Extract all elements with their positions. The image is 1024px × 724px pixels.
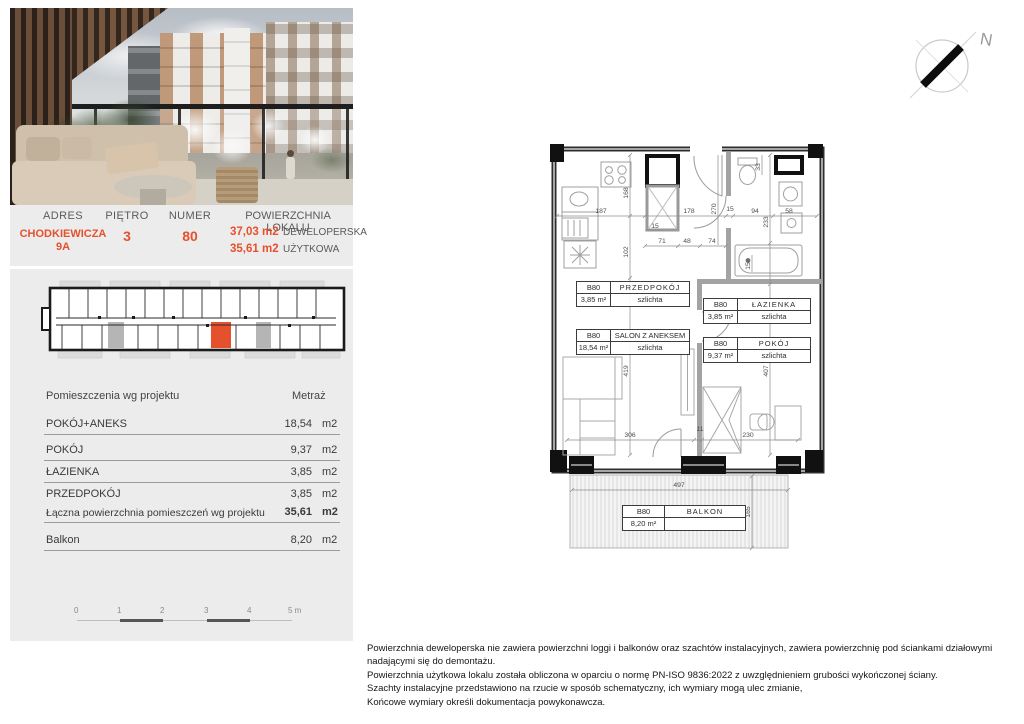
pedestrian — [286, 157, 295, 179]
room-tag-id: B80 — [577, 330, 611, 342]
footnote-line: Powierzchnia deweloperska nie zawiera po… — [367, 642, 1022, 655]
room-row-name: POKÓJ+ANEKS — [46, 418, 127, 430]
dim-label: 497 — [673, 482, 685, 489]
address-label: ADRES — [22, 210, 104, 222]
room-tag-name: POKÓJ — [738, 338, 810, 350]
room-tag-lazienka: B80 ŁAZIENKA 3,85 m² szlichta — [703, 298, 811, 324]
room-row-name: POKÓJ — [46, 444, 83, 456]
balcony-row-name: Balkon — [46, 534, 80, 546]
total-row-unit: m2 — [322, 506, 338, 518]
footnote-line: Powierzchnia użytkowa lokalu została obl… — [367, 669, 1022, 682]
scale-tick: 5 m — [288, 606, 301, 615]
room-tag-id: B80 — [704, 338, 738, 350]
room-tag-finish: szlichta — [738, 311, 810, 323]
dim-label: 168 — [623, 187, 630, 199]
room-tag-finish: szlichta — [611, 294, 689, 306]
room-tag-area: 9,37 m² — [704, 350, 738, 362]
scale-segment — [250, 620, 292, 621]
room-tag-balkon: B80 BALKON 8,20 m² — [622, 505, 746, 531]
room-tag-salon: B80 SALON Z ANEKSEM 18,54 m² szlichta — [576, 329, 690, 355]
unit-highlight — [211, 322, 231, 348]
floor-value: 3 — [97, 230, 157, 243]
dim-label: 48 — [683, 238, 691, 245]
room-tag-finish — [665, 518, 745, 530]
compass-icon: N — [900, 22, 1000, 104]
dim-label: 187 — [595, 208, 607, 215]
number-value: 80 — [160, 230, 220, 243]
entry-opening — [690, 143, 722, 154]
apartment-card: ADRES PIĘTRO NUMER POWIERZCHNIA LOKALU C… — [0, 0, 1024, 724]
room-tag-finish: szlichta — [611, 342, 689, 354]
dim-label: 165 — [745, 506, 752, 518]
floor-overview-plan — [40, 276, 346, 372]
room-tag-id: B80 — [704, 299, 738, 311]
room-tag-name: PRZEDPOKÓJ — [611, 282, 689, 294]
balcony-render-photo — [10, 8, 353, 205]
number-label: NUMER — [160, 210, 220, 222]
dim-label: 71 — [658, 238, 666, 245]
footnote-line: nadającymi się do demontażu. — [367, 655, 1022, 668]
dim-label: 15 — [726, 206, 734, 213]
dim-label: 233 — [763, 216, 770, 228]
dim-label: 11 — [696, 426, 703, 433]
dim-label: 178 — [683, 208, 695, 215]
table-header-metric: Metraż — [292, 390, 326, 402]
balcony-row-unit: m2 — [322, 534, 337, 546]
dim-label: 33 — [755, 163, 762, 171]
floor-label: PIĘTRO — [97, 210, 157, 222]
room-tag-name: BALKON — [665, 506, 745, 518]
basket — [216, 167, 258, 203]
room-row-name: PRZEDPOKÓJ — [46, 488, 121, 500]
room-row-value: 3,85 — [252, 488, 312, 500]
room-tag-area: 3,85 m² — [577, 294, 611, 306]
room-tag-finish: szlichta — [738, 350, 810, 362]
dim-label: 102 — [623, 246, 630, 258]
scale-tick: 3 — [204, 606, 208, 615]
footnotes: Powierzchnia deweloperska nie zawiera po… — [367, 642, 1022, 709]
dim-label: 306 — [624, 432, 636, 439]
scale-segment — [120, 619, 163, 622]
room-row-unit: m2 — [322, 466, 337, 478]
overview-entrance — [42, 308, 50, 330]
shaft-box — [776, 157, 802, 173]
dim-label: 94 — [751, 208, 759, 215]
balcony-row-value: 8,20 — [252, 534, 312, 546]
shaft-box — [647, 156, 678, 186]
footnote-line: Końcowe wymiary określi dokumentacja pow… — [367, 696, 1022, 709]
footnote-line: Szachty instalacyjne przedstawiono na rz… — [367, 682, 1022, 695]
scale-tick: 1 — [117, 606, 121, 615]
row-divider — [44, 460, 340, 461]
room-row-unit: m2 — [322, 418, 337, 430]
scale-tick: 2 — [160, 606, 164, 615]
room-row-value: 9,37 — [252, 444, 312, 456]
room-tag-area: 18,54 m² — [577, 342, 611, 354]
room-tag-id: B80 — [577, 282, 611, 294]
room-row-name: ŁAZIENKA — [46, 466, 99, 478]
dim-label: 407 — [763, 365, 770, 377]
coffee-table-leg — [140, 189, 166, 205]
room-row-unit: m2 — [322, 488, 337, 500]
compass-north-label: N — [979, 29, 994, 50]
room-tag-name: ŁAZIENKA — [738, 299, 810, 311]
area-uzytkowa-type: UŻYTKOWA — [283, 244, 339, 255]
table-header-rooms: Pomieszczenia wg projektu — [46, 390, 179, 402]
dim-label: 74 — [708, 238, 716, 245]
area-deweloperska-type: DEWELOPERSKA — [283, 227, 367, 238]
scale-tick: 4 — [247, 606, 251, 615]
scale-segment — [207, 619, 250, 622]
row-divider — [44, 522, 340, 523]
scale-tick: 0 — [74, 606, 78, 615]
dim-label: 15 — [745, 262, 752, 270]
room-tag-przedpokoj: B80 PRZEDPOKÓJ 3,85 m² szlichta — [576, 281, 690, 307]
area-deweloperska-value: 37,03 m2 — [230, 226, 279, 238]
room-row-unit: m2 — [322, 444, 337, 456]
row-divider — [44, 434, 340, 435]
stairwell — [108, 322, 124, 348]
dim-label: 419 — [623, 365, 630, 377]
room-row-value: 18,54 — [252, 418, 312, 430]
room-tag-area: 8,20 m² — [623, 518, 665, 530]
stairwell — [256, 322, 271, 348]
room-tag-id: B80 — [623, 506, 665, 518]
row-divider — [44, 550, 340, 551]
scale-segment — [77, 620, 120, 621]
row-divider — [44, 482, 340, 483]
room-tag-area: 3,85 m² — [704, 311, 738, 323]
room-tag-pokoj: B80 POKÓJ 9,37 m² szlichta — [703, 337, 811, 363]
room-tag-name: SALON Z ANEKSEM — [611, 330, 689, 342]
dim-label: 230 — [742, 432, 754, 439]
total-row-name: Łączna powierzchnia pomieszczeń wg proje… — [46, 507, 265, 519]
dim-label: 15 — [651, 223, 659, 230]
pillow — [62, 137, 92, 159]
pillow — [26, 137, 60, 161]
dim-label: 58 — [785, 208, 793, 215]
room-row-value: 3,85 — [252, 466, 312, 478]
separator — [10, 266, 353, 269]
dim-label: 270 — [711, 203, 718, 215]
area-uzytkowa-value: 35,61 m2 — [230, 243, 279, 255]
scale-segment — [163, 620, 207, 621]
total-row-value: 35,61 — [252, 506, 312, 518]
